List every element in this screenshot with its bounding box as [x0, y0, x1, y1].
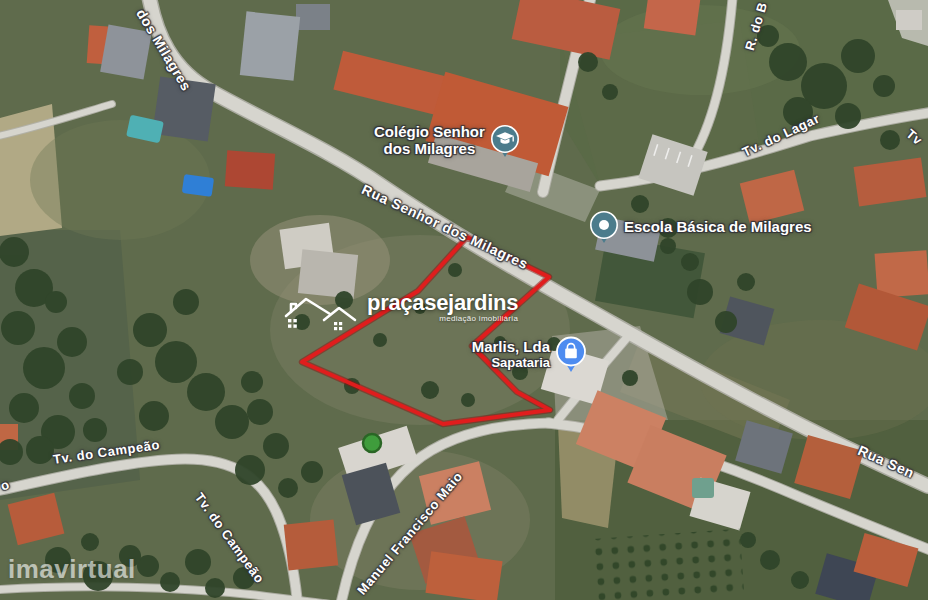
poi-colegio-senhor-dos-milagres: Colégio Senhor dos Milagres	[374, 124, 520, 158]
satellite-map[interactable]: dos Milagres Rua Senhor dos Milagres R. …	[0, 0, 928, 600]
school-icon[interactable]	[490, 124, 520, 158]
poi-escola-basica-de-milagres: Escola Básica de Milagres	[589, 210, 812, 244]
shopping-icon[interactable]	[555, 336, 587, 373]
brand-tagline: mediação imobiliária	[367, 314, 518, 323]
poi-colegio-label: Colégio Senhor dos Milagres	[374, 124, 485, 158]
brand-name: praçasejardins	[367, 290, 518, 316]
place-pin-icon[interactable]	[589, 210, 619, 244]
poi-colegio-line2: dos Milagres	[374, 141, 485, 158]
brand-watermark: praçasejardins mediação imobiliária	[282, 290, 518, 332]
poi-marlis-lda: Marlis, Lda Sapataria	[440, 336, 587, 373]
poi-marlis-line2: Sapataria	[440, 356, 550, 371]
poi-escola-label: Escola Básica de Milagres	[624, 219, 812, 236]
imavirtual-watermark: imavirtual	[8, 554, 136, 585]
brand-houses-icon	[282, 290, 360, 332]
orchard-rows	[590, 529, 744, 600]
poi-marlis-label: Marlis, Lda Sapataria	[440, 339, 550, 370]
poi-marlis-line1: Marlis, Lda	[440, 339, 550, 356]
poi-colegio-line1: Colégio Senhor	[374, 124, 485, 141]
